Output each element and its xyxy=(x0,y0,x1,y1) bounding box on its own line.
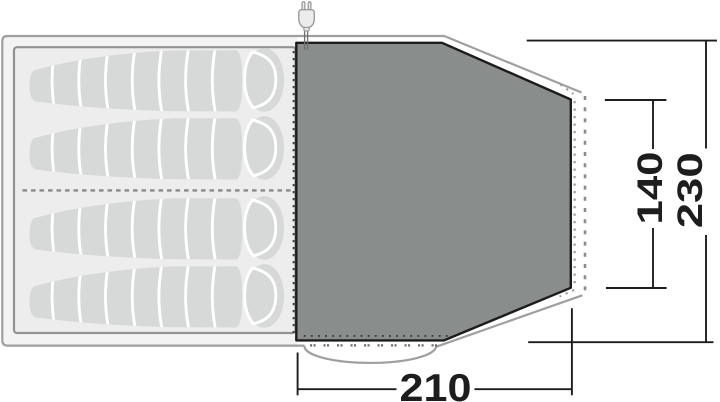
svg-text:140: 140 xyxy=(631,152,670,225)
svg-text:210: 210 xyxy=(400,366,472,402)
svg-text:230: 230 xyxy=(670,152,710,228)
